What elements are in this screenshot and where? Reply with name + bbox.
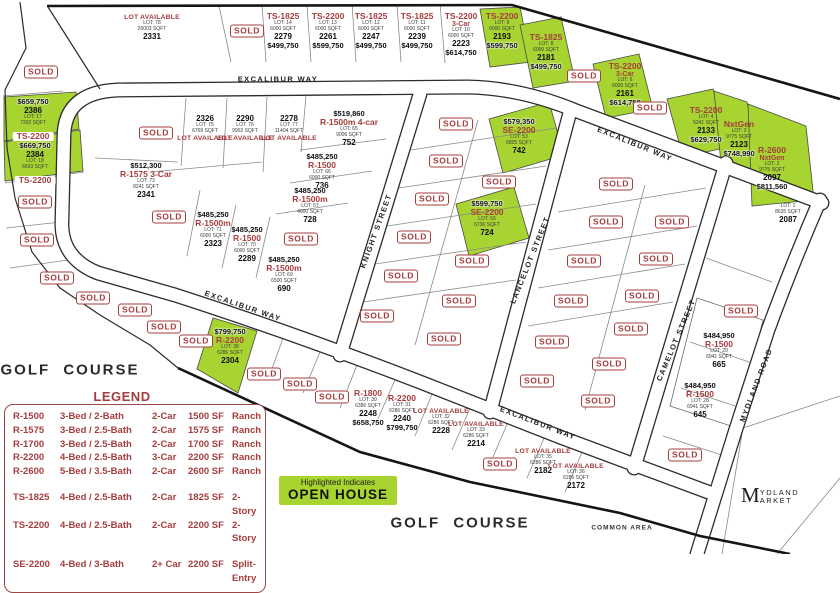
sold-badge-text: SOLD xyxy=(603,179,629,189)
sold-badge-text: SOLD xyxy=(251,369,277,379)
sold-badge: SOLD xyxy=(397,231,431,244)
sold-badge-text: SOLD xyxy=(122,305,148,315)
lot-addr: 2304 xyxy=(214,357,245,365)
legend-sqft: 1575 SF xyxy=(188,424,232,438)
legend-garage: 2-Car xyxy=(152,424,188,438)
legend-sqft: 1500 SF xyxy=(188,410,232,424)
mydland-market-logo: M YDLAND ARKET xyxy=(741,486,799,504)
sold-badge: SOLD xyxy=(625,290,659,303)
plat-map: HIDDEN BRIDGE RANCH EXCALIBUR HOMES 752-… xyxy=(0,0,840,554)
lot-label: R-1800LOT: 306386 SQFT2248$658,750 xyxy=(352,389,383,427)
sold-badge-text: SOLD xyxy=(431,334,457,344)
sold-badge-text: SOLD xyxy=(319,392,345,402)
legend-model: R-1500 xyxy=(13,410,60,424)
sold-badge-text: SOLD xyxy=(539,337,565,347)
lot-label: LOT: 18635 SQFT2087 xyxy=(775,204,801,225)
sold-badge: SOLD xyxy=(118,304,152,317)
sold-badge: SOLD xyxy=(179,335,213,348)
legend-row: R-2200 4-Bed / 2.5-Bath 3-Car 2200 SF Ra… xyxy=(13,451,259,465)
sold-badge: SOLD xyxy=(442,295,476,308)
lot-price: $659,750 xyxy=(13,98,54,106)
sold-badge-text: SOLD xyxy=(629,291,655,301)
open-house-line1: Highlighted Indicates xyxy=(279,478,397,487)
sold-badge-text: SOLD xyxy=(558,296,584,306)
sold-badge: SOLD xyxy=(567,70,601,83)
lot-addr: 2331 xyxy=(124,33,180,41)
sold-badge: SOLD xyxy=(429,155,463,168)
market-text: YDLAND ARKET xyxy=(760,486,799,504)
sold-badge-text: SOLD xyxy=(672,450,698,460)
lot-addr: 724 xyxy=(470,229,503,237)
sold-badge: SOLD xyxy=(284,233,318,246)
sold-badge: SOLD xyxy=(633,102,667,115)
lot-label: TS-2200LOT: 96000 SQFT2193$599,750 xyxy=(486,12,519,50)
lot-label: TS-1825LOT: 126000 SQFT2247$499,750 xyxy=(355,12,388,50)
lot-label: $599,750SE-2200LOT: 556736 SQFT724 xyxy=(470,200,503,238)
legend-row: R-2600 5-Bed / 3.5-Bath 2-Car 2600 SF Ra… xyxy=(13,465,259,479)
sold-badge-text: SOLD xyxy=(596,359,622,369)
lot-addr: 728 xyxy=(292,216,327,224)
sold-badge-text: SOLD xyxy=(487,459,513,469)
sold-badge: SOLD xyxy=(247,368,281,381)
sold-badge: SOLD xyxy=(427,333,461,346)
legend-model: TS-1825 xyxy=(13,491,60,519)
lot-price: $629,750 xyxy=(690,136,723,144)
legend-beds-baths: 4-Bed / 2.5-Bath xyxy=(60,491,152,519)
sold-badge: SOLD xyxy=(668,449,702,462)
sold-badge-text: SOLD xyxy=(388,271,414,281)
legend-beds-baths: 4-Bed / 2.5-Bath xyxy=(60,519,152,547)
legend-garage: 2-Car xyxy=(152,519,188,547)
lot-addr: 2087 xyxy=(775,216,801,224)
sold-badge-text: SOLD xyxy=(446,296,472,306)
lot-label: TS-22003-CarLOT: 66000 SQFT2161$614,750 xyxy=(609,62,642,107)
lot-tiny: 6693 SQFT xyxy=(15,165,56,171)
sold-badge: SOLD xyxy=(455,255,489,268)
sold-badge: SOLD xyxy=(315,391,349,404)
sold-badge-text: SOLD xyxy=(364,311,390,321)
lot-label: TS-22003-CarLOT: 106000 SQFT2223$614,750 xyxy=(445,12,478,57)
lot-model: TS-2200 xyxy=(445,12,478,21)
lot-price: $811,560 xyxy=(757,183,788,191)
area-label-text: GOLF COURSE xyxy=(0,362,139,379)
open-house-line2: OPEN HOUSE xyxy=(279,487,397,502)
area-label-text: COMMON AREA xyxy=(591,525,652,532)
legend-style: Split-Entry xyxy=(232,558,259,586)
lot-label: NxtGenLOT: 39775 SQFT2123$748,990 xyxy=(723,120,754,158)
sold-badge: SOLD xyxy=(589,216,623,229)
lot-price: $599,750 xyxy=(486,42,519,50)
sold-badge: SOLD xyxy=(384,270,418,283)
sold-badge: SOLD xyxy=(482,176,516,189)
legend-row: SE-2200 4-Bed / 3-Bath 2+ Car 2200 SF Sp… xyxy=(13,558,259,586)
lot-price: $499,750 xyxy=(530,63,563,71)
lot-label: $659,7502386LOT: 177202 SQFTTS-2200 xyxy=(13,98,54,144)
legend-beds-baths: 4-Bed / 3-Bath xyxy=(60,558,152,586)
legend-garage: 2-Car xyxy=(152,465,188,479)
sold-badge: SOLD xyxy=(76,292,110,305)
sold-badge-text: SOLD xyxy=(288,234,314,244)
sold-badge: SOLD xyxy=(639,253,673,266)
legend-model: SE-2200 xyxy=(13,558,60,586)
lot-pill: TS-2200 xyxy=(15,176,56,185)
sold-badge-text: SOLD xyxy=(156,212,182,222)
lot-label: $484,950R-1500LOT: 286941 SQFT645 xyxy=(684,382,715,420)
lot-addr: 742 xyxy=(502,147,535,155)
sold-badge: SOLD xyxy=(230,25,264,38)
sold-badge-text: SOLD xyxy=(571,256,597,266)
legend-row: TS-1825 4-Bed / 2.5-Bath 2-Car 1825 SF 2… xyxy=(13,491,259,519)
lot-pill: TS-2200 xyxy=(13,132,54,141)
lot-addr: 665 xyxy=(703,361,734,369)
legend-beds-baths: 3-Bed / 2.5-Bath xyxy=(60,424,152,438)
sold-badge-text: SOLD xyxy=(287,379,313,389)
legend-title: LEGEND xyxy=(47,389,197,404)
sold-badge-text: SOLD xyxy=(234,26,260,36)
sold-badge-text: SOLD xyxy=(486,177,512,187)
lot-price: $748,990 xyxy=(723,150,754,158)
sold-badge: SOLD xyxy=(40,272,74,285)
sold-badge-text: SOLD xyxy=(585,396,611,406)
lot-label: LOT AVAILABLELOT: 366286 SQFT2172 xyxy=(548,463,604,491)
legend-row: R-1700 3-Bed / 2.5-Bath 2-Car 1700 SF Ra… xyxy=(13,438,259,452)
lot-price: $614,750 xyxy=(445,49,478,57)
lot-addr: 752 xyxy=(320,139,378,147)
sold-badge: SOLD xyxy=(147,321,181,334)
lot-label: R-2600NxtGenLOT: 29775 SQFT2097$811,560 xyxy=(757,146,788,191)
lot-avail: LOT AVAILABLE xyxy=(261,135,317,142)
sold-badge: SOLD xyxy=(581,395,615,408)
sold-badge: SOLD xyxy=(535,336,569,349)
lot-label: $519,860R-1500m 4-carLOT: 659006 SQFT752 xyxy=(320,110,378,148)
area-label-text: GOLF COURSE xyxy=(390,515,529,532)
sold-badge-text: SOLD xyxy=(524,376,550,386)
legend-model: R-2200 xyxy=(13,451,60,465)
sold-badge-text: SOLD xyxy=(593,217,619,227)
highlighted-lot-polygons xyxy=(4,7,814,393)
legend-row: R-1500 3-Bed / 2-Bath 2-Car 1500 SF Ranc… xyxy=(13,410,259,424)
legend-model: TS-2200 xyxy=(13,519,60,547)
lot-price: $599,750 xyxy=(312,42,345,50)
lot-label: LOT AVAILABLELOT: 336286 SQFT2214 xyxy=(448,421,504,449)
lot-model: R-2600 xyxy=(757,146,788,155)
open-house-note: Highlighted Indicates OPEN HOUSE xyxy=(279,476,397,505)
legend-sqft: 2200 SF xyxy=(188,558,232,586)
legend-style: Ranch xyxy=(232,424,261,438)
lot-price: $499,750 xyxy=(267,42,300,50)
lot-label: $669,7502384LOT: 186693 SQFTTS-2200 xyxy=(15,142,56,188)
sold-badge: SOLD xyxy=(592,358,626,371)
sold-badge: SOLD xyxy=(520,375,554,388)
legend-sqft: 2200 SF xyxy=(188,451,232,465)
legend-sqft: 1700 SF xyxy=(188,438,232,452)
sold-badge: SOLD xyxy=(567,255,601,268)
lot-price: $658,750 xyxy=(352,419,383,427)
sold-badge-text: SOLD xyxy=(618,324,644,334)
legend-beds-baths: 5-Bed / 3.5-Bath xyxy=(60,465,152,479)
sold-badge-text: SOLD xyxy=(643,254,669,264)
sold-badge: SOLD xyxy=(18,196,52,209)
lot-addr: 2323 xyxy=(195,240,230,248)
legend-beds-baths: 4-Bed / 2.5-Bath xyxy=(60,451,152,465)
legend-model: R-2600 xyxy=(13,465,60,479)
sold-badge-text: SOLD xyxy=(24,235,50,245)
lot-addr: 2172 xyxy=(548,482,604,490)
legend: R-1500 3-Bed / 2-Bath 2-Car 1500 SF Ranc… xyxy=(4,404,266,593)
sold-badge-text: SOLD xyxy=(183,336,209,346)
sold-badge: SOLD xyxy=(724,305,758,318)
sold-badge: SOLD xyxy=(139,127,173,140)
sold-badge-text: SOLD xyxy=(22,197,48,207)
legend-style: Ranch xyxy=(232,438,261,452)
sold-badge-text: SOLD xyxy=(28,67,54,77)
lot-label: $484,950R-1500LOT: 296941 SQFT665 xyxy=(703,332,734,370)
market-line2: ARKET xyxy=(760,497,799,505)
sold-badge: SOLD xyxy=(554,295,588,308)
lot-label: $799,750R-2200LOT: 386286 SQFT2304 xyxy=(214,328,245,366)
lot-label: 2278LOT: 7711404 SQFTLOT AVAILABLE xyxy=(261,114,317,142)
sold-badge-text: SOLD xyxy=(419,194,445,204)
lot-label: TS-2200LOT: 45241 SQFT2133$629,750 xyxy=(690,106,723,144)
lot-price: $499,750 xyxy=(355,42,388,50)
legend-style: 2-Story xyxy=(232,519,259,547)
legend-style: 2-Story xyxy=(232,491,259,519)
sold-badge-text: SOLD xyxy=(80,293,106,303)
sold-badge: SOLD xyxy=(483,458,517,471)
area-label: COMMON AREA xyxy=(591,525,652,532)
sold-badge-text: SOLD xyxy=(659,217,685,227)
legend-garage: 2+ Car xyxy=(152,558,188,586)
lot-label: $485,250R-1500mLOT: 674000 SQFT728 xyxy=(292,187,327,225)
legend-style: Ranch xyxy=(232,451,261,465)
legend-row: TS-2200 4-Bed / 2.5-Bath 2-Car 2200 SF 2… xyxy=(13,519,259,547)
lot-label: TS-1825LOT: 116000 SQFT2239$499,750 xyxy=(401,12,434,50)
area-label: GOLF COURSE xyxy=(0,362,139,379)
sold-badge-text: SOLD xyxy=(143,128,169,138)
street-name: EXCALIBUR WAY xyxy=(238,75,318,84)
lot-label: $512,300R-1575 3-CarLOT: 738241 SQFT2341 xyxy=(120,162,172,200)
sold-badge-text: SOLD xyxy=(443,119,469,129)
lot-label: $485,250R-1500LOT: 706000 SQFT2289 xyxy=(231,226,262,264)
sold-badge-text: SOLD xyxy=(571,71,597,81)
sold-badge: SOLD xyxy=(20,234,54,247)
legend-beds-baths: 3-Bed / 2.5-Bath xyxy=(60,438,152,452)
lot-addr: 2341 xyxy=(120,191,172,199)
legend-style: Ranch xyxy=(232,410,261,424)
sold-badge-text: SOLD xyxy=(433,156,459,166)
lot-addr: 2289 xyxy=(231,255,262,263)
lot-label: $485,250R-1500LOT: 666000 SQFT736 xyxy=(306,153,337,191)
lot-label: $485,250R-1500mLOT: 696500 SQFT690 xyxy=(266,256,301,294)
lot-addr: 645 xyxy=(684,411,715,419)
lot-tiny: 7202 SQFT xyxy=(13,121,54,127)
sold-badge: SOLD xyxy=(24,66,58,79)
sold-badge: SOLD xyxy=(655,216,689,229)
lot-price: $669,750 xyxy=(15,142,56,150)
sold-badge-text: SOLD xyxy=(728,306,754,316)
sold-badge: SOLD xyxy=(614,323,648,336)
sold-badge: SOLD xyxy=(360,310,394,323)
lot-price: $499,750 xyxy=(401,42,434,50)
legend-model: R-1700 xyxy=(13,438,60,452)
lot-label: TS-1825LOT: 146000 SQFT2279$499,750 xyxy=(267,12,300,50)
legend-sqft: 1825 SF xyxy=(188,491,232,519)
sold-badge: SOLD xyxy=(283,378,317,391)
sold-badge-text: SOLD xyxy=(44,273,70,283)
sold-badge-text: SOLD xyxy=(459,256,485,266)
lot-addr: 2214 xyxy=(448,440,504,448)
sold-badge-text: SOLD xyxy=(637,103,663,113)
legend-style: Ranch xyxy=(232,465,261,479)
legend-beds-baths: 3-Bed / 2-Bath xyxy=(60,410,152,424)
area-label: GOLF COURSE xyxy=(390,515,529,532)
sold-badge: SOLD xyxy=(599,178,633,191)
sold-badge-text: SOLD xyxy=(401,232,427,242)
sold-badge-text: SOLD xyxy=(151,322,177,332)
lot-label: TS-1825LOT: 86000 SQFT2181$499,750 xyxy=(530,33,563,71)
street-label: EXCALIBUR WAY xyxy=(238,75,318,84)
sold-badge: SOLD xyxy=(415,193,449,206)
legend-garage: 2-Car xyxy=(152,438,188,452)
sold-badge: SOLD xyxy=(152,211,186,224)
legend-garage: 3-Car xyxy=(152,451,188,465)
market-initial: M xyxy=(741,486,760,504)
lot-label: $485,250R-1500mLOT: 716000 SQFT2323 xyxy=(195,211,230,249)
lot-addr: 690 xyxy=(266,285,301,293)
lot-label: $579,350SE-2200LOT: 536805 SQFT742 xyxy=(502,118,535,156)
lot-label: LOT AVAILABLELOT: 7826003 SQFT2331 xyxy=(124,14,180,42)
legend-row: R-1575 3-Bed / 2.5-Bath 2-Car 1575 SF Ra… xyxy=(13,424,259,438)
sold-badge: SOLD xyxy=(439,118,473,131)
legend-model: R-1575 xyxy=(13,424,60,438)
legend-garage: 2-Car xyxy=(152,491,188,519)
legend-garage: 2-Car xyxy=(152,410,188,424)
lot-model: TS-2200 xyxy=(609,62,642,71)
legend-sqft: 2200 SF xyxy=(188,519,232,547)
lot-label: TS-2200LOT: 136000 SQFT2261$599,750 xyxy=(312,12,345,50)
legend-sqft: 2600 SF xyxy=(188,465,232,479)
